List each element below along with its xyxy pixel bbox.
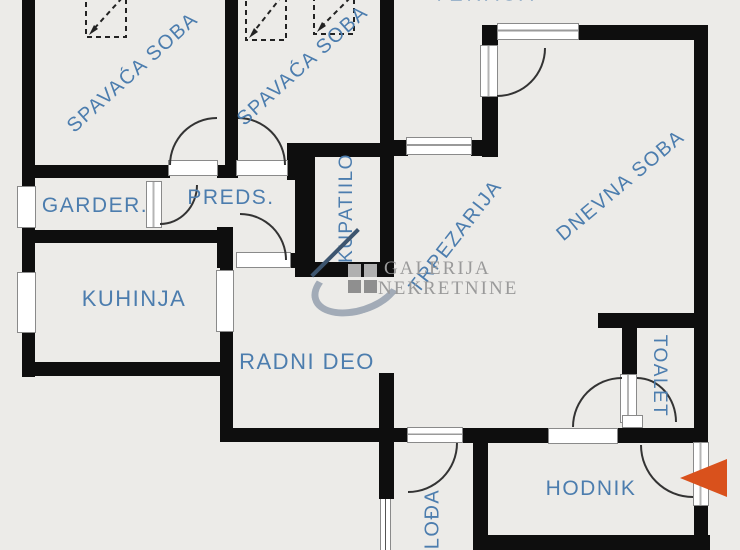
watermark-line2: NEKRETNINE [378,278,518,300]
door-sill [548,428,618,444]
entrance-arrow-icon [680,459,727,497]
watermark-line1: GALERIJA [384,258,491,280]
wall [622,325,637,380]
door-arc [497,48,546,97]
room-label-garderoba: GARDER. [42,194,148,218]
wall [618,428,694,443]
door-arc [572,377,622,427]
room-label-kuhinja: KUHINJA [82,286,187,312]
loggia-window [380,499,391,550]
room-label-toalet: TOALET [648,335,670,418]
wall [598,313,708,328]
wall [22,230,233,243]
wall [22,165,170,178]
wall [473,535,710,550]
window [17,186,36,228]
room-label-predsoblje: PREDS. [187,186,274,210]
room-label-dnevna-soba: DNEVNA SOBA [552,126,689,246]
window [407,427,463,443]
wall [462,428,550,443]
wall [471,140,484,156]
window [17,272,36,333]
watermark-logo-square [364,264,377,277]
wall [220,230,233,442]
window [497,23,579,40]
wall [22,362,233,376]
room-label-radni-deo: RADNI DEO [239,349,375,375]
room-label-lodja: LOĐA [422,489,445,549]
wall [295,157,315,277]
wall [694,25,708,443]
wall [482,95,498,157]
wall [379,373,394,499]
room-label-terasa: TERASA [433,0,537,7]
wardrobe-icon [244,0,288,42]
watermark-logo-square [348,264,361,277]
wall [473,443,488,550]
balcony-door-leaf [480,45,498,97]
wardrobe-icon [84,0,128,39]
wall [694,505,708,550]
wall [578,25,708,40]
watermark-logo-square [348,280,361,293]
wall [225,0,238,167]
room-label-hodnik: HODNIK [546,477,637,501]
door-arc [408,443,458,493]
door-arc [169,117,217,165]
wall [217,165,238,178]
wall [380,0,394,277]
window [216,270,234,332]
window [406,137,472,155]
floor-plan: TERASA SPAVAĆA SOBA SPAVAĆA SOBA GARDER.… [0,0,740,550]
watermark-logo-square [364,280,377,293]
door-arc [240,213,287,260]
